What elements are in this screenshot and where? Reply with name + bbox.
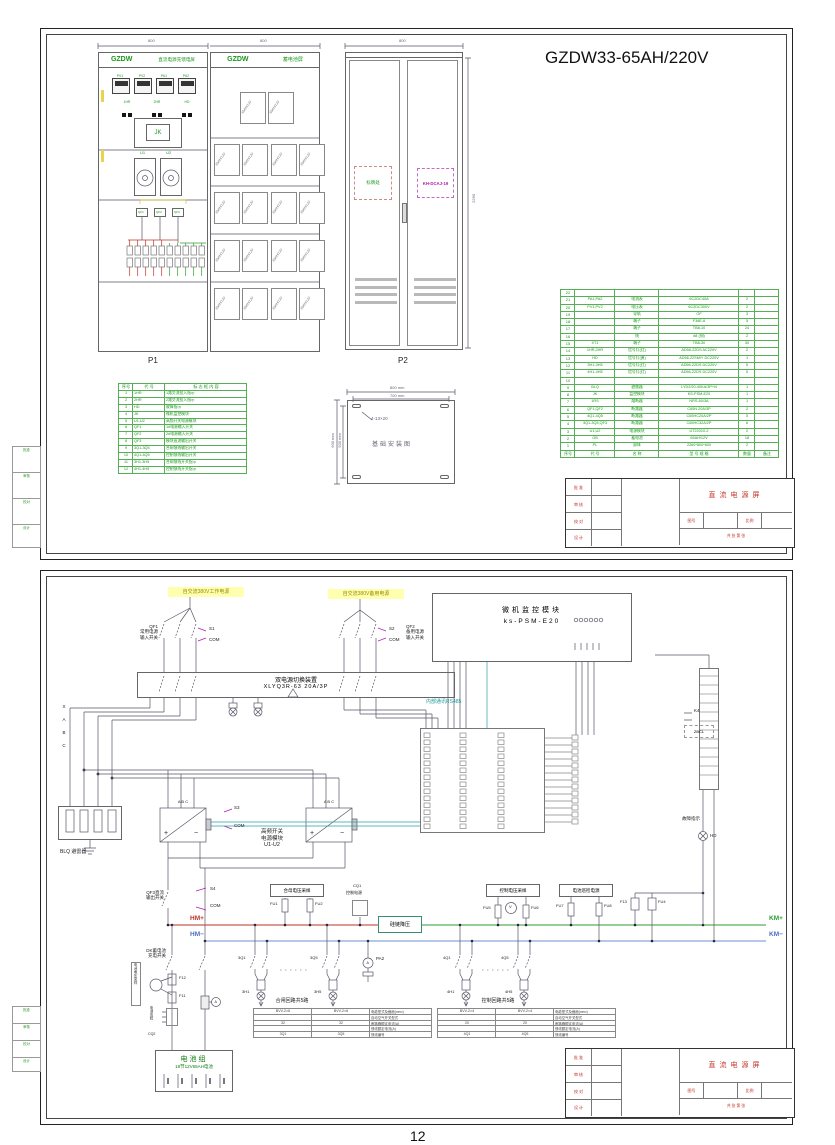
bom-row: 22: [561, 290, 779, 297]
bom-spec: #8 (铜): [659, 334, 739, 341]
bom-row: 5 4Q1-4Q5 断路器 C65HC20A/2P 5: [561, 414, 779, 421]
battery-ameter-glyph: A: [215, 1000, 217, 1004]
foundation-dim-700: 700 mm: [390, 394, 404, 399]
bom-code: 3H1-3H5: [575, 363, 615, 370]
margin-cell: 审核: [13, 473, 40, 499]
battery-cell: 65AH/12V: [299, 288, 325, 320]
legend-desc: 控制馈线输出开关: [165, 453, 247, 460]
bom-note: [755, 326, 779, 333]
phase-letters: X A B C: [60, 700, 68, 752]
bom-no: 18: [561, 319, 575, 326]
bom-code: [575, 312, 615, 319]
tb-field: 校 对: [566, 513, 592, 530]
bom-row: 16 线 #8 (铜) 2: [561, 334, 779, 341]
bom-no: 2: [561, 436, 575, 443]
qf3-label: QF3直流 输出开关: [130, 890, 164, 901]
legend-desc: 控制馈线开关指示: [165, 467, 247, 474]
bom-row: 15 XT1 端子 TB8-30 30: [561, 341, 779, 348]
bom-note: [755, 436, 779, 443]
legend-desc: 微机监控模块: [165, 412, 247, 419]
legend-no: 6: [119, 425, 133, 432]
bom-row: 9 BLQ 避雷器 LYD2/20-40KA/3P+N 1: [561, 385, 779, 392]
sampling-board-box: [420, 728, 545, 833]
drawing-page: { "page": {"footer_page_number": "12"}, …: [0, 0, 835, 1144]
battery-cell-label: 65AH/12V: [215, 248, 227, 263]
foundation-slot: [440, 475, 449, 479]
bom-spec: F36E-6: [659, 319, 739, 326]
p1-hinge: [101, 150, 104, 162]
bom-name: 避雷器: [615, 385, 659, 392]
battery-cell: 65AH/12V: [242, 240, 268, 272]
tb-sub: 比例: [738, 1083, 762, 1099]
legend-header-row: 序号 代 号 标 志 框 内 容: [119, 384, 247, 391]
title-block-1: 批 准 审 核 校 对 设 计 直流电源屏 图号 比例 共 张 第 张: [565, 478, 795, 548]
s4-label: S4: [210, 886, 216, 891]
legend-code: 2HR: [133, 398, 165, 405]
stepdown-label: 硅链降压: [390, 921, 410, 928]
fu5-label: FU5: [483, 906, 491, 911]
bom-footer: 代 号: [575, 451, 615, 458]
bom-name: 端子: [615, 341, 659, 348]
blq-box: [58, 806, 122, 840]
legend-row: 12 4H1-4H5 控制馈线开关指示: [119, 467, 247, 474]
p2-nameplate-window: 标牌处: [354, 166, 392, 200]
k4-label: K4: [694, 708, 700, 713]
bom-row: 13 HD 信号灯(黄) AD56-22SM/Y DC220V 1: [561, 356, 779, 363]
bom-rows: 22 21 PA1,PA2 电流表 6C2DC40A 2 20 PV1,PV2 …: [561, 290, 779, 451]
legend-code: 3H1-3H5: [133, 460, 165, 467]
s3-com-label: COM: [234, 823, 245, 828]
bom-row: 14 1HR,2HR 信号灯(红) AD56-22DS AC220V 2: [561, 348, 779, 355]
battery-cell-label: 65AH/12V: [215, 200, 227, 215]
dim-800-p2: 800: [399, 39, 406, 44]
cq1-terminal: [352, 900, 368, 916]
tb-field: 设 计: [566, 1100, 592, 1116]
jk-module-inner: JK: [146, 124, 170, 141]
feeder-4h1-label: 4H1: [447, 990, 454, 995]
cabinet-p1-header: GZDW 直流电源充馈电屏: [98, 52, 208, 68]
dim-800-p1: 800: [148, 39, 155, 44]
feeder-val-2: 4Q5: [496, 1032, 554, 1038]
zbcl-box: ZBCL: [684, 725, 714, 738]
bom-row: 6 QF1,QF2 断路器 C65N 20A/3P 2: [561, 407, 779, 414]
legend-desc: 合闸馈线开关指示: [165, 460, 247, 467]
monitor-name: 微机监控模块: [433, 605, 631, 615]
bom-qty: 6: [739, 421, 755, 428]
foundation-dim-600: 600 mm: [331, 433, 336, 447]
bom-name: 断路器: [615, 421, 659, 428]
fu4-label: FU4: [658, 900, 666, 905]
bom-qty: 2: [739, 305, 755, 312]
legend-code: QF2: [133, 432, 165, 439]
bom-spec: 6C2DC300V: [659, 305, 739, 312]
foundation-dim-800: 800 mm: [390, 386, 404, 391]
legend-desc: 2#电源输入开关: [165, 432, 247, 439]
bom-note: [755, 378, 779, 385]
p2-louver-right: [414, 278, 456, 304]
sheet2-margin-stamp: 批准 审核 校对 设计: [12, 1006, 41, 1072]
blq-label: BLQ 避雷器: [60, 849, 86, 855]
p2-top-cap: [345, 52, 463, 58]
bom-footer: 数量: [739, 451, 755, 458]
ats-model: XLYQ3R-63 20A/3P: [138, 684, 454, 690]
bom-spec: KS-PSM-E20: [659, 392, 739, 399]
battery-patrol-label: 电池巡检电源: [573, 888, 600, 894]
monitor-module-box: 微机监控模块 ks-PSM-E20: [432, 593, 632, 662]
bom-row: 4 3Q1-3Q5,QF3 断路器 C65HC32A/2P 6: [561, 421, 779, 428]
bom-qty: 2: [739, 297, 755, 304]
legend-row: 3 HD 故障指示: [119, 405, 247, 412]
bom-qty: [739, 290, 755, 297]
battery-brand: GZDW: [227, 56, 248, 63]
phase-c: C: [60, 739, 68, 752]
battery-cell: 65AH/12V: [214, 192, 240, 224]
bom-no: 14: [561, 348, 575, 355]
lamp-label: 2HR: [146, 100, 168, 104]
battery-cell-label: 65AH/12V: [243, 200, 255, 215]
jk-label: JK: [154, 130, 161, 136]
bom-no: 16: [561, 334, 575, 341]
s3-label: S3: [234, 805, 240, 810]
battery-cell: 65AH/12V: [271, 144, 297, 176]
bom-spec: AD56-22DS DC220V: [659, 370, 739, 377]
bom-spec: 65AH/12V: [659, 436, 739, 443]
qf1-breaker: QF1: [136, 208, 148, 217]
rectifier-group-label: 高频开关 电源模块 U1-U2: [240, 829, 304, 849]
battery-cell-label: 65AH/12V: [271, 248, 283, 263]
legend-code: JK: [133, 412, 165, 419]
meter-face: [178, 78, 196, 94]
tb-title: 直流电源屏: [680, 479, 792, 513]
bom-qty: 5: [739, 363, 755, 370]
legend-no: 11: [119, 460, 133, 467]
battery-cell: 65AH/12V: [299, 240, 325, 272]
legend-desc: 模块直流输出开关: [165, 439, 247, 446]
battery-row: 65AH/12V65AH/12V65AH/12V65AH/12V: [214, 288, 328, 320]
bom-footer-row: 序号 代 号 名 称 型 号 规 格 数量 备注: [561, 451, 779, 458]
bom-name: [615, 378, 659, 385]
battery-cell-label: 65AH/12V: [243, 296, 255, 311]
battery-cell-label: 65AH/12V: [243, 248, 255, 263]
battery-cell: 65AH/12V: [268, 92, 294, 124]
fu3-label: F13: [620, 900, 627, 905]
battery-cell: 65AH/12V: [299, 192, 325, 224]
bom-note: [755, 334, 779, 341]
fu2-label: FU2: [315, 902, 323, 907]
foundation-slot: [440, 404, 449, 408]
f11-label: F11: [179, 994, 186, 999]
bom-name: 电流表: [615, 297, 659, 304]
bom-code: XT1: [575, 341, 615, 348]
legend-desc: 1路交流投入指示: [165, 391, 247, 398]
legend-desc: 故障指示: [165, 405, 247, 412]
battery-cell: 65AH/12V: [214, 288, 240, 320]
legend-desc: 合闸馈线输出开关: [165, 446, 247, 453]
feeder-val-2: 3Q5: [312, 1032, 370, 1038]
bom-name: 信号灯(黄): [615, 356, 659, 363]
legend-row: 8 QF3 模块直流输出开关: [119, 439, 247, 446]
control-bus-sample-label: 控制电压采样: [500, 888, 527, 894]
qf3-breaker: QF3: [172, 208, 184, 217]
bom-no: 7: [561, 399, 575, 406]
bom-row: 11 4H1-4H5 信号灯(红) AD56-22DS DC220V 5: [561, 370, 779, 377]
bom-no: 3: [561, 429, 575, 436]
bom-qty: 30: [739, 341, 755, 348]
bom-name: 信号灯(红): [615, 370, 659, 377]
p1-label: P1: [148, 356, 158, 366]
bom-spec: 6C2DC40A: [659, 297, 739, 304]
rect2-minus: −: [340, 830, 344, 838]
qf1-desc2: 输入开关: [116, 635, 158, 640]
tb-field: 批 准: [566, 479, 592, 496]
s2-com-label: COM: [389, 637, 400, 642]
feeder-dots-right: ······: [482, 968, 512, 975]
bom-code: [575, 326, 615, 333]
legend-desc: 2路交流投入指示: [165, 398, 247, 405]
bom-row: 8 JK 监控模块 KS-PSM-E20 1: [561, 392, 779, 399]
bom-row: 3 U1,U2 电源模块 UT22010-2 2: [561, 429, 779, 436]
legend-rows: 1 1HR 1路交流投入指示 2 2HR 2路交流投入指示 3 HD 故障指示 …: [119, 391, 247, 474]
bom-name: 电压表: [615, 305, 659, 312]
bom-row: 10: [561, 378, 779, 385]
bom-spec: OF: [659, 312, 739, 319]
bom-name: 断路器: [615, 414, 659, 421]
rect2-plus: +: [310, 830, 314, 838]
bom-code: JK: [575, 392, 615, 399]
bom-no: 21: [561, 297, 575, 304]
bom-qty: 2: [739, 348, 755, 355]
battery-cell: 65AH/12V: [271, 240, 297, 272]
cq1-desc: 控制电源: [346, 891, 362, 896]
bom-spec: LYD2/20-40KA/3P+N: [659, 385, 739, 392]
rect1-plus: +: [164, 830, 168, 838]
feeder-val-1: 3Q1: [254, 1032, 312, 1038]
km-minus-label: KM−: [769, 931, 783, 939]
bom-no: 9: [561, 385, 575, 392]
rectifier-u2: [160, 158, 182, 196]
margin-cell: 设计: [13, 525, 40, 549]
margin-cell: 审核: [13, 1024, 40, 1041]
pa2-ameter-glyph: A: [367, 961, 369, 965]
battery-cell-label: 65AH/12V: [215, 152, 227, 167]
legend-no: 2: [119, 398, 133, 405]
battery-cell-label: 65AH/12V: [241, 100, 253, 115]
tb-field: 审 核: [566, 496, 592, 513]
hm-plus-label: HM+: [190, 915, 204, 923]
battery-pack-spec: 18节12V65AH电池: [156, 1064, 232, 1070]
battery-cabinet-header: GZDW 蓄电池屏: [210, 52, 320, 68]
bom-no: 19: [561, 312, 575, 319]
battery-cell: 65AH/12V: [271, 288, 297, 320]
legend-row: 10 4Q1-4Q5 控制馈线输出开关: [119, 453, 247, 460]
tb-field: 批 准: [566, 1049, 592, 1066]
p1-hinge: [101, 90, 104, 102]
bom-name: 熔断器: [615, 399, 659, 406]
bom-qty: 24: [739, 326, 755, 333]
bom-note: [755, 305, 779, 312]
fu8-label: FU8: [604, 904, 612, 909]
tb-field: 校 对: [566, 1083, 592, 1100]
bom-name: [615, 290, 659, 297]
panel-meter: PA2: [178, 74, 194, 94]
tb-sub: 比例: [738, 513, 762, 529]
bom-row: 7 1RS 熔断器 NRS-60/3A 1: [561, 399, 779, 406]
bom-row: 21 PA1,PA2 电流表 6C2DC40A 2: [561, 297, 779, 304]
battery-cell-label: 65AH/12V: [300, 152, 312, 167]
s1-label: S1: [209, 626, 215, 631]
bom-no: 15: [561, 341, 575, 348]
qf1-label: QF1: [138, 211, 144, 215]
battery-row: 65AH/12V65AH/12V: [240, 92, 297, 124]
battery-cell-label: 65AH/12V: [300, 296, 312, 311]
bom-note: [755, 370, 779, 377]
legend-row: 5 U1,U2 高频开关电源模块: [119, 419, 247, 426]
bom-code: [575, 290, 615, 297]
bom-code: GB: [575, 436, 615, 443]
bom-no: 4: [561, 421, 575, 428]
bom-code: HD: [575, 356, 615, 363]
battery-patrol-box: 电池巡检电源: [559, 884, 613, 897]
ac-source-label-left: 自交流380V工作电源: [168, 587, 244, 597]
vmeter-label: V: [509, 905, 512, 910]
battery-cell: 65AH/12V: [240, 92, 266, 124]
phase-a: A: [60, 713, 68, 726]
ats-name: 双电源切换装置: [138, 675, 454, 684]
feeder-3h1-label: 3H1: [242, 990, 249, 995]
battery-cell: 65AH/12V: [242, 192, 268, 224]
cabinet-p1: [98, 52, 208, 352]
bom-table: 22 21 PA1,PA2 电流表 6C2DC40A 2 20 PV1,PV2 …: [560, 289, 779, 458]
battery-cell-label: 65AH/12V: [271, 152, 283, 167]
legend-code: U1,U2: [133, 419, 165, 426]
bom-qty: 3: [739, 312, 755, 319]
qf3-line2: 输出开关: [130, 895, 164, 900]
battery-cell: 65AH/12V: [242, 144, 268, 176]
legend-row: 11 3H1-3H5 合闸馈线开关指示: [119, 460, 247, 467]
dim-2260: 2260: [472, 194, 477, 203]
legend-row: 1 1HR 1路交流投入指示: [119, 391, 247, 398]
legend-no: 7: [119, 432, 133, 439]
battery-pack-title: 电池组: [156, 1054, 232, 1064]
page-number: 12: [410, 1128, 426, 1145]
bom-note: [755, 429, 779, 436]
bom-footer: 名 称: [615, 451, 659, 458]
foundation-slot: [352, 475, 361, 479]
rect1-pins: A B C: [160, 800, 206, 805]
feeder-table-left: BVV-2×6 BVV-2×6 电缆型式及截面(mm²) 自动空气开关型式 32…: [253, 1008, 432, 1038]
bom-note: [755, 356, 779, 363]
foundation-holes-label: 4-13×20: [371, 416, 388, 421]
bom-spec: UT22010-2: [659, 429, 739, 436]
fu1-label: FU1: [270, 902, 278, 907]
bom-spec: TB8-30: [659, 341, 739, 348]
legend-row: 9 3Q1-3Q5 合闸馈线输出开关: [119, 446, 247, 453]
bom-note: [755, 407, 779, 414]
bom-row: 12 3H1-3H5 信号灯(红) AD56-22DS DC220V 5: [561, 363, 779, 370]
hm-minus-label: HM−: [190, 931, 204, 939]
closing-bus-sample-label: 合母电压采样: [284, 888, 311, 894]
f12-label: F12: [179, 976, 186, 981]
bom-footer: 备注: [755, 451, 779, 458]
legend-no: 4: [119, 412, 133, 419]
margin-cell: 校对: [13, 1041, 40, 1058]
bom-name: 蓄电池: [615, 436, 659, 443]
bom-spec: TB8-10: [659, 326, 739, 333]
bom-name: 信号灯(红): [615, 348, 659, 355]
p1-meter-row: PV1 PV2 PA1 PA2: [112, 74, 200, 94]
bom-code: [575, 319, 615, 326]
p1-panel-name: 直流电源充馈电屏: [158, 57, 195, 63]
bom-spec: NRS-60/3A: [659, 399, 739, 406]
bom-code: BLQ: [575, 385, 615, 392]
bom-no: 5: [561, 414, 575, 421]
bom-note: [755, 392, 779, 399]
bom-row: 20 PV1,PV2 电压表 6C2DC300V 2: [561, 305, 779, 312]
bom-qty: [739, 378, 755, 385]
monitor-model: ks-PSM-E20: [433, 618, 631, 625]
fu6-label: FU6: [531, 906, 539, 911]
feeder-3q1-label: 3Q1: [238, 956, 246, 961]
cq2-desc: 电池巡检: [150, 1006, 155, 1020]
bom-note: [755, 312, 779, 319]
battery-panel-name: 蓄电池屏: [283, 56, 303, 63]
bom-name: 电源模块: [615, 429, 659, 436]
bom-footer: 型 号 规 格: [659, 451, 739, 458]
bom-spec: C65HC20A/2P: [659, 414, 739, 421]
module-label-u2: U2: [166, 151, 171, 156]
battery-cell: 65AH/12V: [214, 144, 240, 176]
bom-spec: C65HC32A/2P: [659, 421, 739, 428]
bom-name: 导轨: [615, 312, 659, 319]
feeder-table-row: 4Q1 4Q5 馈线编号: [438, 1032, 616, 1038]
bom-note: [755, 297, 779, 304]
rs485-label: 内部通讯RS485: [426, 699, 461, 705]
rect1-minus: −: [194, 830, 198, 838]
meter-face: [156, 78, 174, 94]
battery-cell-label: 65AH/12V: [271, 296, 283, 311]
bom-qty: 1: [739, 399, 755, 406]
ac-source-label-right: 自交流380V备用电源: [328, 589, 404, 599]
legend-code: 1HR: [133, 391, 165, 398]
bom-code: 1RS: [575, 399, 615, 406]
zbcl-label: ZBCL: [694, 729, 704, 734]
sheet1-margin-stamp: 批准 审核 校对 设计: [12, 446, 41, 548]
battery-cell: 65AH/12V: [299, 144, 325, 176]
bom-note: [755, 341, 779, 348]
p2-label: P2: [398, 356, 408, 366]
bom-qty: 2: [739, 429, 755, 436]
bom-no: 8: [561, 392, 575, 399]
bom-code: PL: [575, 443, 615, 450]
bom-no: 22: [561, 290, 575, 297]
panel-meter: PV2: [134, 74, 150, 94]
control-bus-sample-box: 控制电压采样: [486, 884, 540, 897]
pa2-label: PA2: [376, 956, 384, 961]
feeder-3h5-label: 3H5: [314, 990, 321, 995]
legend-row: 7 QF2 2#电源输入开关: [119, 432, 247, 439]
rect2-pins: A B C: [306, 800, 352, 805]
battery-row: 65AH/12V65AH/12V65AH/12V65AH/12V: [214, 144, 328, 176]
feeder-left-title: 合闸回路共5路: [260, 998, 324, 1004]
bom-code: 3Q1-3Q5,QF3: [575, 421, 615, 428]
hd-lamp-label: HD: [710, 833, 717, 838]
bom-qty: 2: [739, 407, 755, 414]
p2-module-label: KH-DCAJ-19: [423, 181, 449, 186]
charge-switch-label: DK蓄电池 充电开关: [128, 948, 166, 959]
closing-bus-sample-box: 合母电压采样: [270, 884, 324, 897]
bom-code: 1HR,2HR: [575, 348, 615, 355]
legend-no: 3: [119, 405, 133, 412]
